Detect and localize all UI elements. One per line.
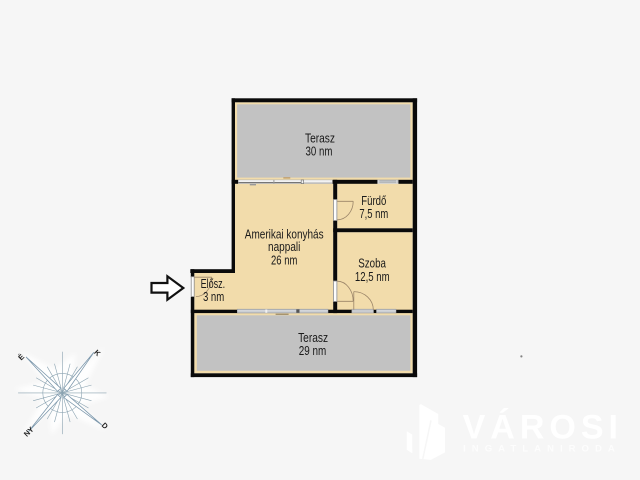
svg-text:29 nm: 29 nm: [299, 344, 327, 358]
svg-text:nappali: nappali: [268, 240, 300, 254]
svg-text:Fürdő: Fürdő: [361, 194, 386, 208]
svg-text:VÁROSI: VÁROSI: [463, 408, 623, 446]
svg-text:7,5 nm: 7,5 nm: [359, 207, 388, 221]
svg-text:Terasz: Terasz: [305, 131, 335, 145]
svg-text:12,5 nm: 12,5 nm: [355, 270, 390, 284]
svg-text:26 nm: 26 nm: [271, 254, 297, 268]
svg-text:Szoba: Szoba: [358, 256, 386, 270]
svg-text:3 nm: 3 nm: [203, 290, 224, 304]
svg-text:INGATLANIRODA: INGATLANIRODA: [463, 443, 621, 454]
svg-text:30 nm: 30 nm: [306, 145, 333, 159]
svg-text:Terasz: Terasz: [298, 331, 328, 345]
